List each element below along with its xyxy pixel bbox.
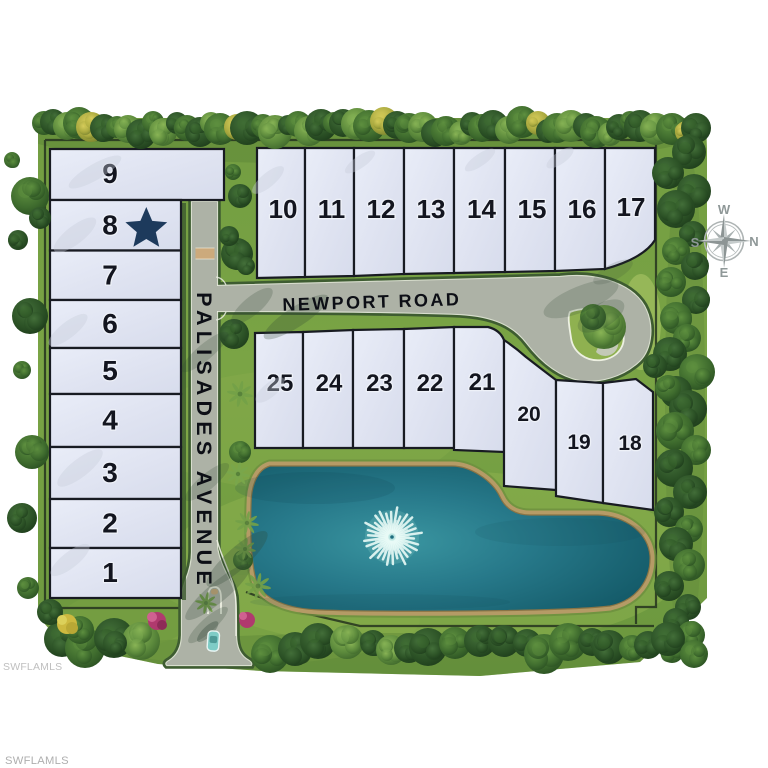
svg-text:4: 4 — [102, 405, 118, 436]
svg-text:14: 14 — [467, 194, 496, 224]
svg-text:13: 13 — [417, 194, 446, 224]
svg-text:24: 24 — [316, 370, 343, 397]
svg-text:N: N — [749, 234, 758, 249]
svg-text:S: S — [691, 235, 700, 250]
svg-text:18: 18 — [618, 432, 642, 455]
svg-text:8: 8 — [102, 209, 118, 240]
svg-text:17: 17 — [617, 192, 646, 222]
svg-text:23: 23 — [366, 370, 393, 397]
svg-text:1: 1 — [102, 557, 118, 588]
svg-text:21: 21 — [469, 369, 496, 396]
svg-text:2: 2 — [102, 508, 118, 539]
svg-text:16: 16 — [568, 194, 597, 224]
svg-text:PALISADES AVENUE: PALISADES AVENUE — [192, 292, 216, 590]
svg-text:7: 7 — [102, 259, 118, 290]
svg-text:SWFLAMLS: SWFLAMLS — [5, 755, 69, 767]
svg-text:12: 12 — [367, 194, 396, 224]
svg-text:19: 19 — [567, 431, 590, 454]
svg-text:11: 11 — [318, 194, 346, 224]
svg-text:6: 6 — [102, 308, 118, 339]
svg-text:W: W — [718, 202, 731, 217]
svg-text:3: 3 — [102, 457, 118, 488]
svg-text:20: 20 — [517, 403, 540, 426]
svg-text:E: E — [720, 265, 729, 280]
svg-text:5: 5 — [102, 355, 118, 386]
svg-text:10: 10 — [269, 194, 298, 224]
svg-text:15: 15 — [518, 194, 547, 224]
svg-text:SWFLAMLS: SWFLAMLS — [3, 661, 62, 673]
svg-text:22: 22 — [417, 370, 444, 397]
